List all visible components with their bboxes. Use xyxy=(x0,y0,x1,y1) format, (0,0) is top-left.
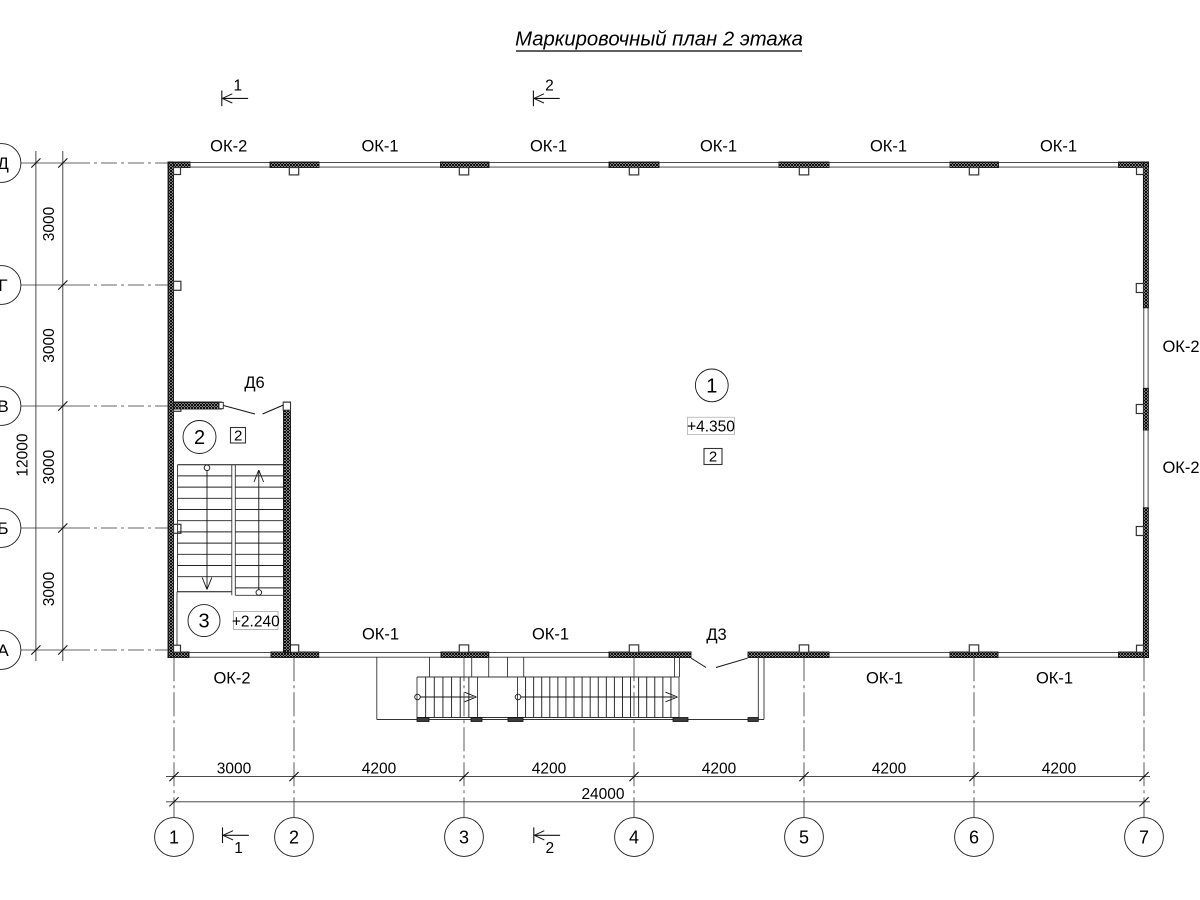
svg-text:ОК-2: ОК-2 xyxy=(1162,338,1199,356)
svg-text:ОК-1: ОК-1 xyxy=(870,138,907,156)
svg-text:2: 2 xyxy=(234,428,242,445)
svg-text:ОК-1: ОК-1 xyxy=(530,138,567,156)
svg-text:6: 6 xyxy=(969,828,979,848)
svg-text:В: В xyxy=(0,397,9,416)
svg-text:ОК-1: ОК-1 xyxy=(532,626,569,644)
svg-text:4: 4 xyxy=(629,828,639,848)
svg-text:12000: 12000 xyxy=(15,433,32,476)
svg-text:ОК-2: ОК-2 xyxy=(210,138,247,156)
svg-text:ОК-1: ОК-1 xyxy=(866,670,903,688)
svg-text:2: 2 xyxy=(194,427,205,449)
svg-text:2: 2 xyxy=(709,449,717,466)
svg-text:ОК-2: ОК-2 xyxy=(1162,459,1199,477)
svg-text:4200: 4200 xyxy=(532,761,567,778)
svg-text:1: 1 xyxy=(706,375,717,397)
svg-text:Д3: Д3 xyxy=(706,626,726,644)
svg-text:3000: 3000 xyxy=(41,206,58,241)
svg-text:2: 2 xyxy=(545,77,554,94)
svg-text:Д6: Д6 xyxy=(244,374,264,392)
svg-text:+2.240: +2.240 xyxy=(232,613,280,630)
svg-text:ОК-1: ОК-1 xyxy=(1040,138,1077,156)
svg-text:4200: 4200 xyxy=(362,761,397,778)
svg-text:Маркировочный план 2 этажа: Маркировочный план 2 этажа xyxy=(515,29,803,51)
svg-text:Б: Б xyxy=(0,519,9,538)
svg-text:3000: 3000 xyxy=(41,328,58,363)
svg-text:А: А xyxy=(0,641,9,660)
svg-text:24000: 24000 xyxy=(581,786,624,803)
svg-text:1: 1 xyxy=(169,828,179,848)
svg-text:3000: 3000 xyxy=(217,761,252,778)
svg-text:4200: 4200 xyxy=(702,761,737,778)
svg-text:3: 3 xyxy=(198,611,209,633)
svg-text:Д: Д xyxy=(0,154,9,173)
svg-text:7: 7 xyxy=(1139,828,1149,848)
svg-text:ОК-1: ОК-1 xyxy=(700,138,737,156)
svg-text:1: 1 xyxy=(233,77,242,94)
svg-text:ОК-1: ОК-1 xyxy=(362,626,399,644)
svg-text:1: 1 xyxy=(234,840,243,857)
svg-text:5: 5 xyxy=(799,828,809,848)
svg-text:ОК-1: ОК-1 xyxy=(1036,670,1073,688)
svg-text:3000: 3000 xyxy=(41,449,58,484)
svg-text:4200: 4200 xyxy=(1042,761,1077,778)
svg-text:ОК-1: ОК-1 xyxy=(361,138,398,156)
svg-text:3: 3 xyxy=(459,828,469,848)
svg-text:ОК-2: ОК-2 xyxy=(213,670,250,688)
svg-text:Г: Г xyxy=(0,276,8,295)
svg-text:4200: 4200 xyxy=(872,761,907,778)
svg-text:3000: 3000 xyxy=(41,571,58,606)
svg-text:2: 2 xyxy=(289,828,299,848)
svg-text:+4.350: +4.350 xyxy=(687,419,735,436)
svg-text:2: 2 xyxy=(545,840,554,857)
